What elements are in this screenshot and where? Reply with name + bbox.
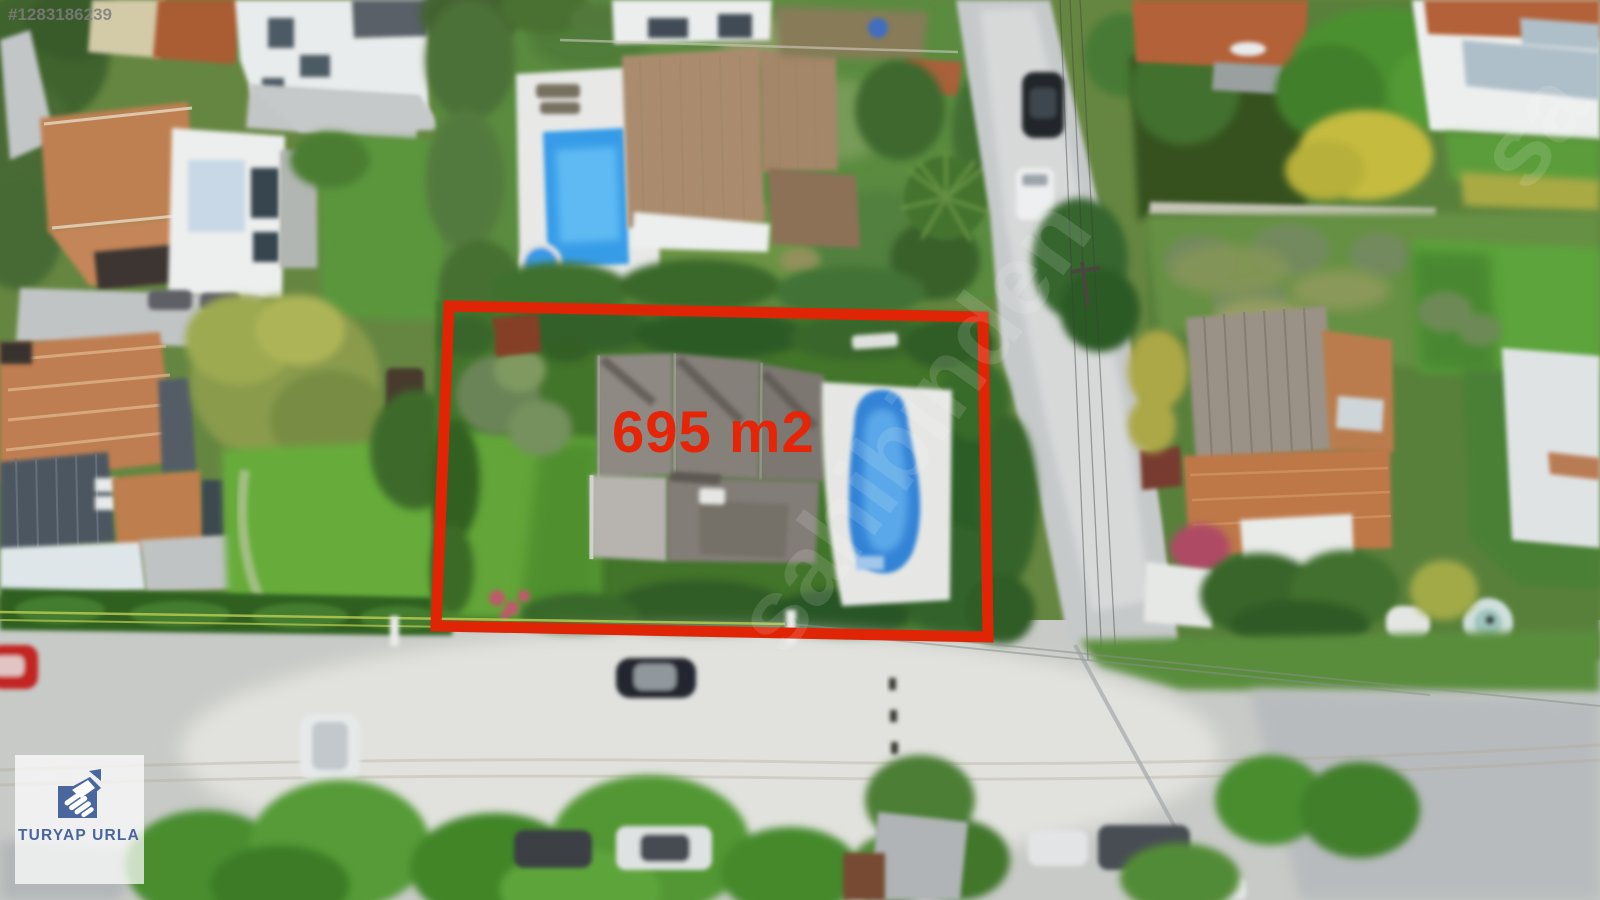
svg-text:TURYAP URLA: TURYAP URLA [18,827,140,844]
svg-text:#1283186239: #1283186239 [8,5,112,24]
svg-text:695 m2: 695 m2 [612,400,815,465]
